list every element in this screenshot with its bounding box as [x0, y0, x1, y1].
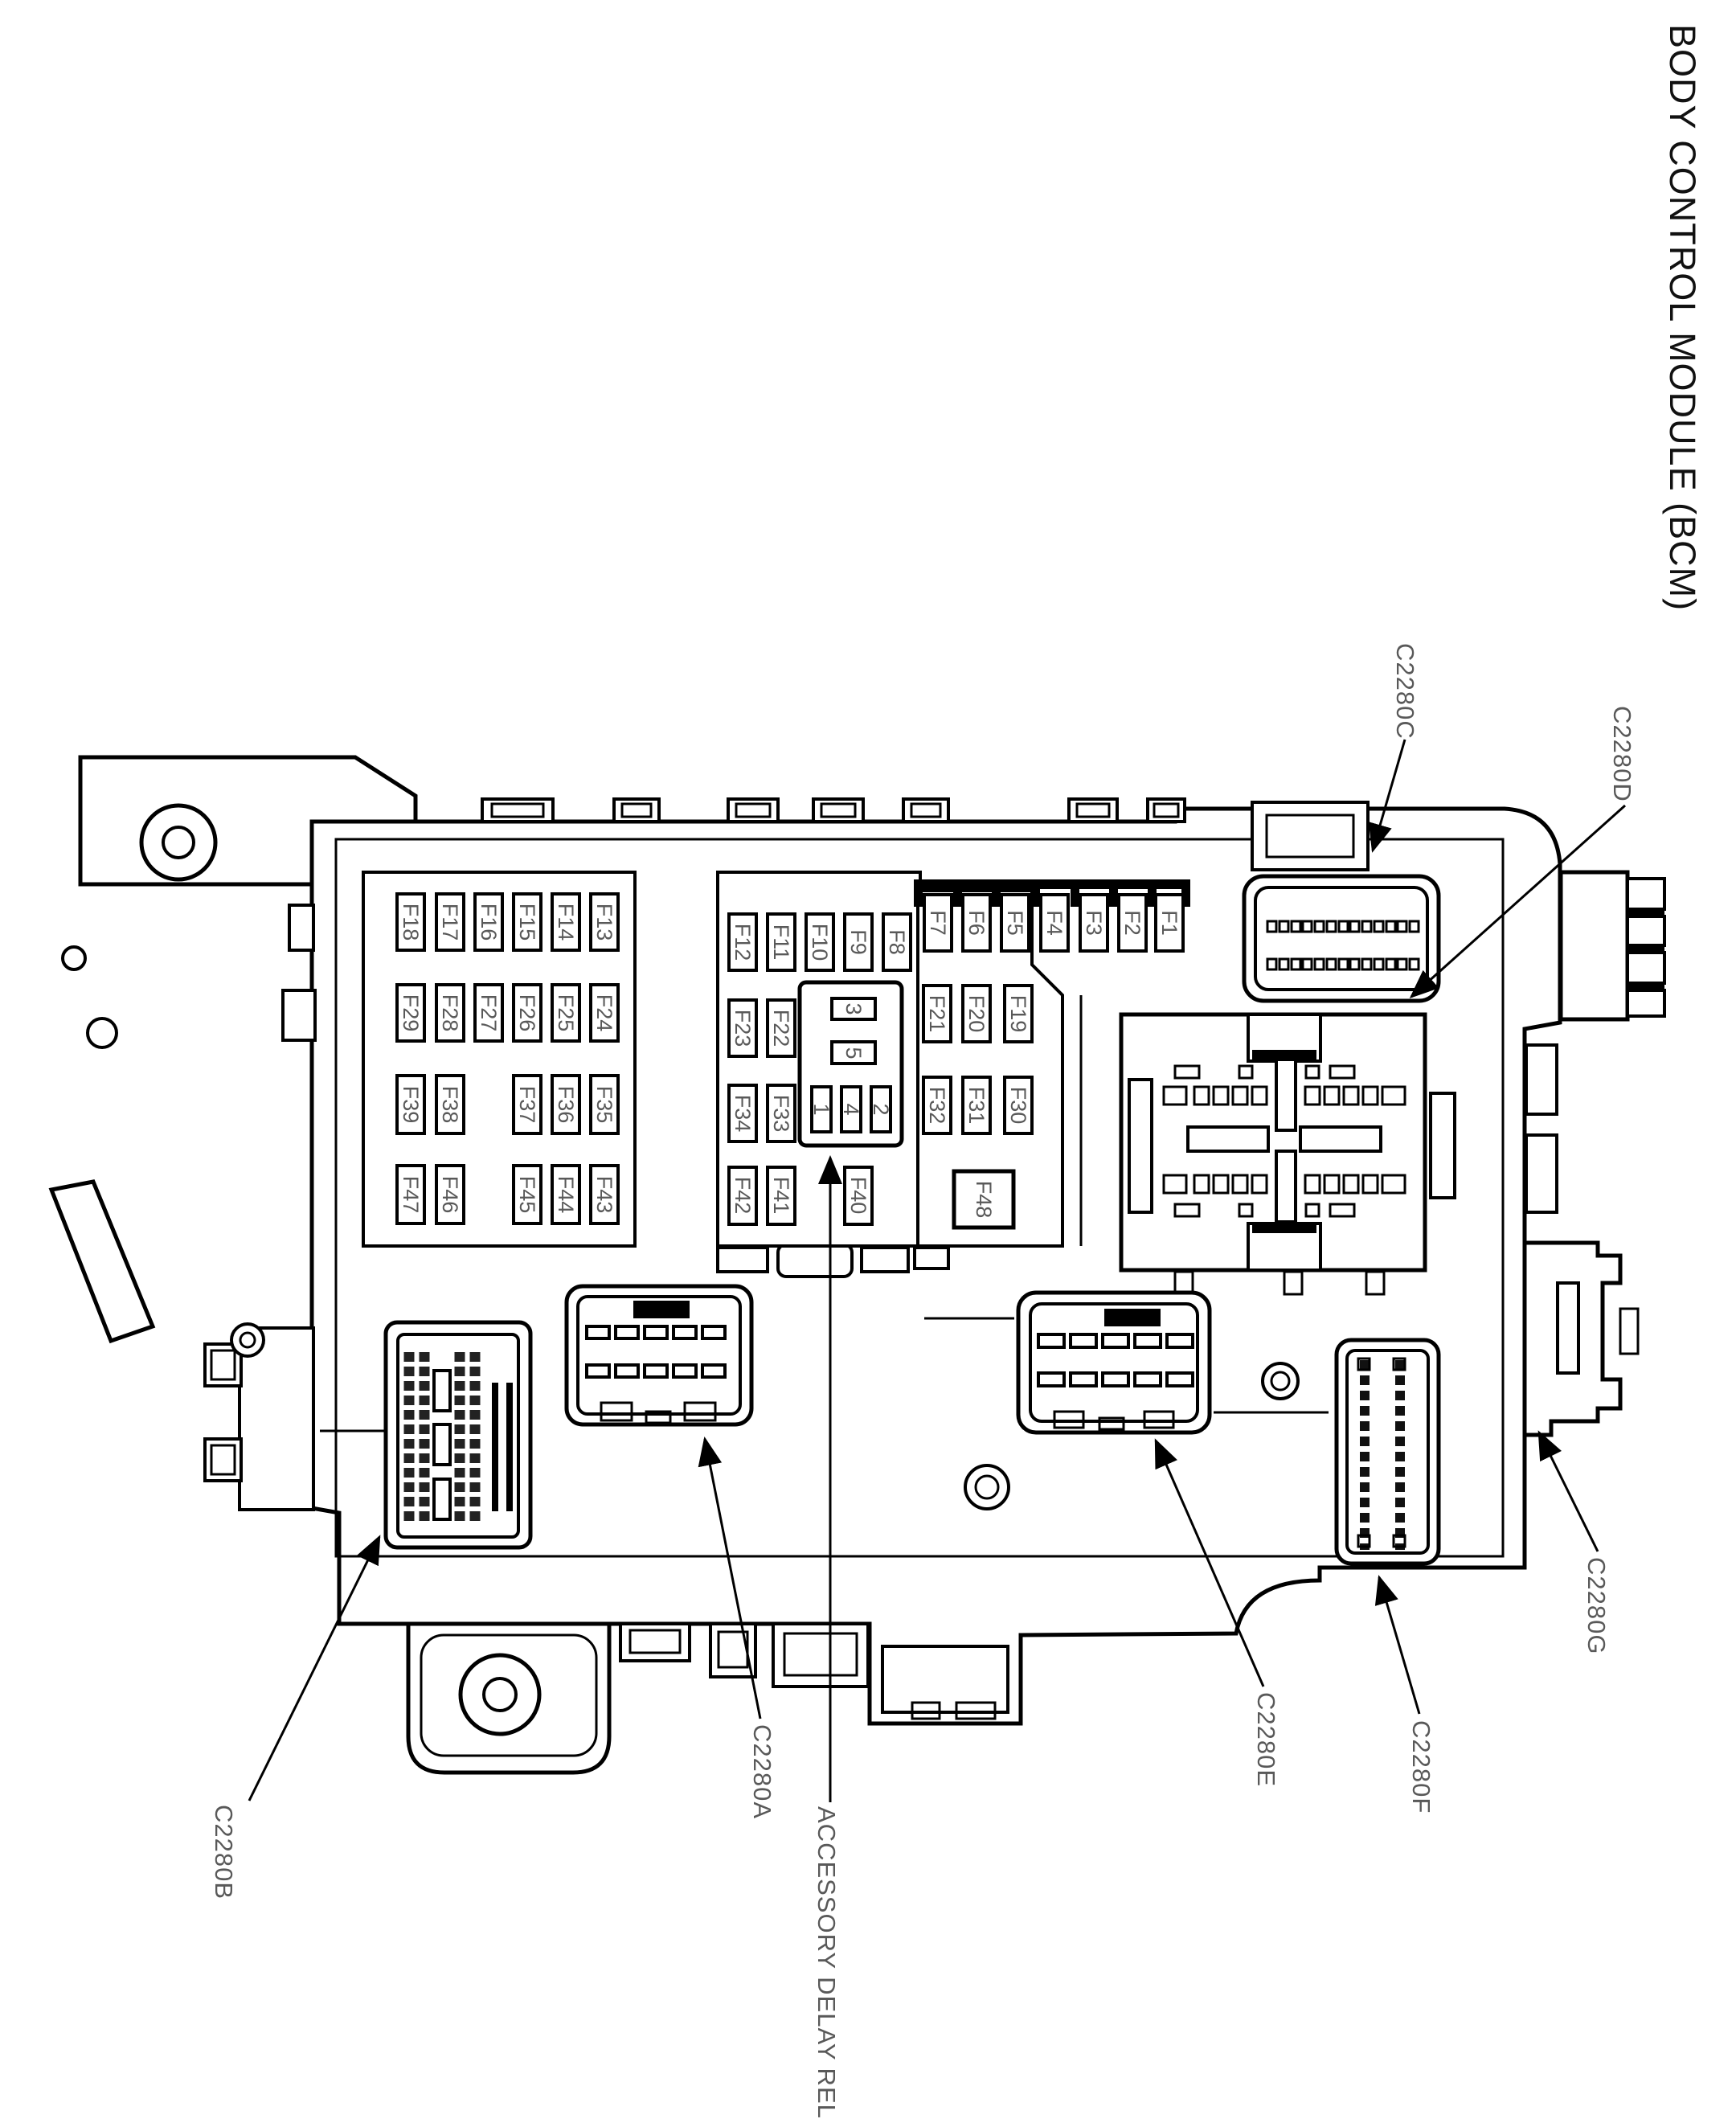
- fuse-f26: F26: [514, 985, 541, 1041]
- fuse-f22: F22: [768, 1000, 795, 1056]
- fuse-f17: F17: [436, 894, 464, 950]
- svg-text:F20: F20: [964, 995, 989, 1033]
- svg-text:F32: F32: [925, 1087, 949, 1125]
- callout-c2280g-arrow: [1539, 1432, 1598, 1551]
- svg-text:3: 3: [841, 1002, 866, 1014]
- relay-slot-5: 5: [832, 1042, 875, 1064]
- relay-slot-2: 2: [869, 1087, 893, 1132]
- fuse-f19: F19: [1005, 986, 1032, 1042]
- callout-c2280b-arrow: [249, 1537, 379, 1801]
- connector-c2280c: [1244, 876, 1439, 1001]
- svg-text:F8: F8: [885, 929, 909, 955]
- svg-text:F41: F41: [769, 1177, 793, 1215]
- fuse-f9: F9: [845, 914, 872, 970]
- fuse-f30: F30: [1005, 1077, 1032, 1133]
- relay-slot-3: 3: [832, 998, 875, 1019]
- fuse-f25: F25: [552, 985, 579, 1041]
- mounting-slant-bar: [51, 947, 153, 1341]
- svg-text:4: 4: [839, 1103, 863, 1115]
- svg-text:F14: F14: [554, 904, 578, 941]
- fuse-f28: F28: [436, 985, 464, 1041]
- svg-text:F16: F16: [477, 904, 501, 941]
- connector-c2280a: [567, 1286, 751, 1424]
- fuse-f42: F42: [729, 1167, 756, 1224]
- svg-text:F9: F9: [846, 929, 870, 955]
- connector-c2280d: [1121, 1014, 1455, 1294]
- bcm-diagram: BODY CONTROL MODULE (BCM): [0, 0, 1736, 2119]
- svg-text:F4: F4: [1042, 910, 1067, 936]
- svg-text:F23: F23: [731, 1010, 755, 1047]
- svg-text:F21: F21: [925, 995, 949, 1033]
- fuse-f12: F12: [729, 914, 756, 970]
- fuse-f20: F20: [963, 986, 990, 1042]
- fuse-f29: F29: [397, 985, 424, 1041]
- fuse-f48: F48: [954, 1171, 1013, 1228]
- svg-text:F37: F37: [515, 1086, 539, 1124]
- svg-text:F33: F33: [769, 1095, 793, 1133]
- svg-text:F26: F26: [515, 994, 539, 1032]
- callout-c2280d-label: C2280D: [1608, 706, 1636, 802]
- fuse-f7: F7: [924, 895, 952, 951]
- connector-c2280e: [1018, 1293, 1210, 1432]
- fuse-f38: F38: [436, 1076, 464, 1133]
- fuse-f37: F37: [514, 1076, 541, 1133]
- fuse-f35: F35: [591, 1076, 618, 1133]
- svg-text:F19: F19: [1006, 995, 1030, 1033]
- fuse-f8: F8: [883, 914, 911, 970]
- svg-text:F15: F15: [515, 904, 539, 941]
- svg-text:F44: F44: [554, 1176, 578, 1214]
- fuse-f11: F11: [768, 914, 795, 970]
- svg-text:F10: F10: [808, 924, 832, 961]
- fuse-f4: F4: [1041, 895, 1068, 951]
- callout-accessory-delay-relay-label: ACCESSORY DELAY RELAY: [813, 1806, 841, 2119]
- page-title: BODY CONTROL MODULE (BCM): [1662, 24, 1703, 611]
- svg-text:F35: F35: [592, 1086, 616, 1124]
- svg-text:F7: F7: [926, 910, 950, 936]
- fuse-f2: F2: [1119, 895, 1146, 951]
- fuse-f33: F33: [768, 1085, 795, 1141]
- fuse-f14: F14: [552, 894, 579, 950]
- svg-text:F43: F43: [592, 1176, 616, 1214]
- fuse-f43: F43: [591, 1166, 618, 1223]
- callout-c2280f-label: C2280F: [1407, 1720, 1435, 1814]
- callout-c2280b-label: C2280B: [210, 1805, 238, 1900]
- svg-text:F40: F40: [846, 1177, 870, 1215]
- svg-text:F12: F12: [731, 924, 755, 961]
- fuse-f41: F41: [768, 1167, 795, 1224]
- connector-c2280b: [386, 1322, 530, 1547]
- callout-c2280c-label: C2280C: [1391, 643, 1419, 740]
- fuse-f36: F36: [552, 1076, 579, 1133]
- svg-text:F11: F11: [769, 924, 793, 961]
- svg-text:F38: F38: [438, 1086, 462, 1124]
- callout-c2280a-label: C2280A: [748, 1724, 776, 1819]
- fuse-f5: F5: [1001, 895, 1029, 951]
- svg-text:F28: F28: [438, 994, 462, 1032]
- connector-c2280g: [1525, 1243, 1638, 1435]
- fuse-f18: F18: [397, 894, 424, 950]
- fuse-f10: F10: [806, 914, 833, 970]
- relay-slot-4: 4: [839, 1087, 863, 1132]
- callout-c2280e-label: C2280E: [1252, 1692, 1280, 1787]
- fuse-f40: F40: [845, 1167, 872, 1224]
- svg-text:F18: F18: [399, 904, 423, 941]
- callout-c2280f-arrow: [1379, 1577, 1419, 1714]
- fuse-f21: F21: [923, 986, 951, 1042]
- fuse-f13: F13: [591, 894, 618, 950]
- svg-text:F25: F25: [554, 994, 578, 1032]
- fuse-f15: F15: [514, 894, 541, 950]
- fuse-f44: F44: [552, 1166, 579, 1223]
- svg-text:F30: F30: [1006, 1087, 1030, 1125]
- fuse-f32: F32: [923, 1077, 951, 1133]
- svg-text:F6: F6: [964, 910, 989, 936]
- fuse-f31: F31: [963, 1077, 990, 1133]
- svg-text:F27: F27: [477, 994, 501, 1032]
- svg-text:F2: F2: [1120, 910, 1144, 936]
- bcm-fuse-box-page: BODY CONTROL MODULE (BCM): [0, 0, 1736, 2119]
- svg-text:F17: F17: [438, 904, 462, 941]
- svg-text:F42: F42: [731, 1177, 755, 1215]
- fuse-f6: F6: [963, 895, 990, 951]
- svg-text:F24: F24: [592, 994, 616, 1032]
- fuse-f1: F1: [1156, 895, 1183, 951]
- fuse-f27: F27: [475, 985, 502, 1041]
- svg-text:1: 1: [809, 1103, 833, 1115]
- svg-text:F47: F47: [399, 1176, 423, 1214]
- svg-text:F34: F34: [731, 1095, 755, 1133]
- svg-text:F39: F39: [399, 1086, 423, 1124]
- fuse-f16: F16: [475, 894, 502, 950]
- relay-slot-1: 1: [809, 1087, 833, 1132]
- svg-text:F3: F3: [1082, 910, 1106, 936]
- fuse-f3: F3: [1080, 895, 1108, 951]
- fuse-f47: F47: [397, 1166, 424, 1223]
- fuse-f46: F46: [436, 1166, 464, 1223]
- svg-text:F22: F22: [769, 1010, 793, 1047]
- svg-text:F48: F48: [972, 1181, 996, 1219]
- svg-text:F46: F46: [438, 1176, 462, 1214]
- svg-text:F5: F5: [1003, 910, 1027, 936]
- fuse-f39: F39: [397, 1076, 424, 1133]
- fuse-f24: F24: [591, 985, 618, 1041]
- fuse-f34: F34: [729, 1085, 756, 1141]
- fuse-f23: F23: [729, 1000, 756, 1056]
- svg-text:5: 5: [841, 1047, 866, 1059]
- svg-text:2: 2: [869, 1103, 893, 1115]
- callout-c2280g-label: C2280G: [1582, 1557, 1611, 1654]
- svg-text:F36: F36: [554, 1086, 578, 1124]
- mounting-bracket-bottom: [408, 1624, 609, 1773]
- svg-text:F29: F29: [399, 994, 423, 1032]
- svg-text:F13: F13: [592, 904, 616, 941]
- svg-text:F1: F1: [1157, 910, 1181, 936]
- svg-text:F31: F31: [964, 1087, 989, 1125]
- housing-left-protrusion: [205, 905, 315, 1510]
- accessory-delay-relay-box: 3 5 1 4 2: [800, 982, 902, 1146]
- svg-text:F45: F45: [515, 1176, 539, 1214]
- fuse-f45: F45: [514, 1166, 541, 1223]
- connector-c2280f: [1337, 1340, 1439, 1564]
